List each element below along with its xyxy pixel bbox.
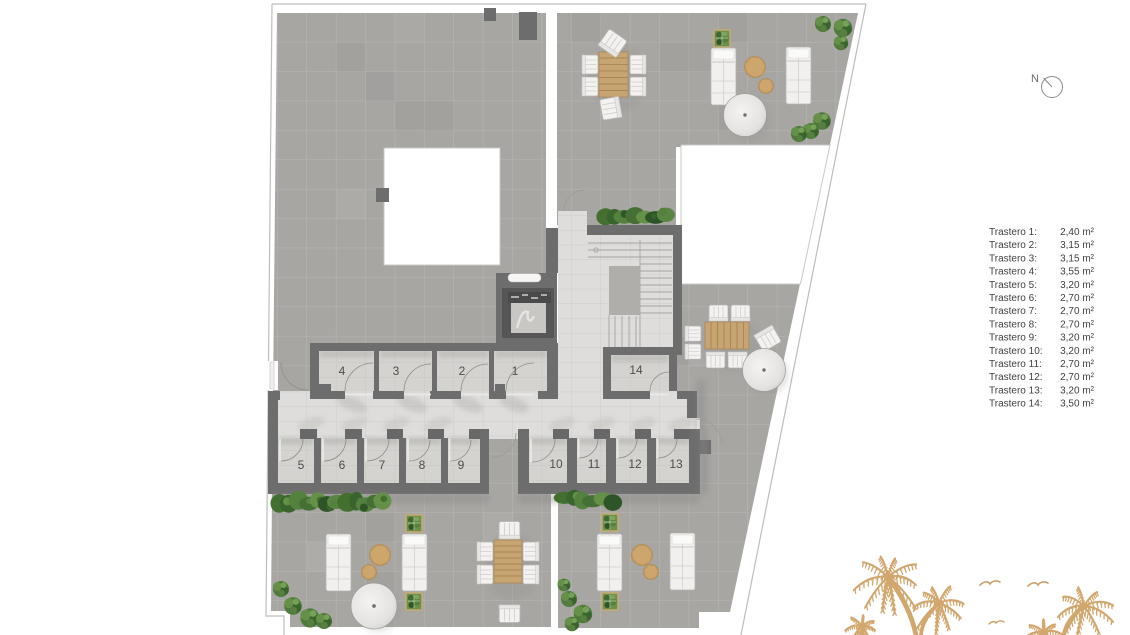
svg-text:14: 14 xyxy=(629,363,643,377)
svg-text:Trastero 6:: Trastero 6: xyxy=(989,293,1037,304)
svg-text:9: 9 xyxy=(458,458,465,472)
svg-text:2: 2 xyxy=(459,364,466,378)
svg-text:5: 5 xyxy=(298,458,305,472)
svg-text:Trastero 10:: Trastero 10: xyxy=(989,346,1043,357)
svg-text:11: 11 xyxy=(588,457,601,471)
svg-text:2,70 m²: 2,70 m² xyxy=(1060,359,1095,370)
svg-text:Trastero 1:: Trastero 1: xyxy=(989,227,1037,238)
svg-text:Trastero 5:: Trastero 5: xyxy=(989,280,1037,291)
svg-text:8: 8 xyxy=(419,458,426,472)
svg-text:Trastero 3:: Trastero 3: xyxy=(989,253,1037,264)
svg-text:3,20 m²: 3,20 m² xyxy=(1060,385,1095,396)
svg-text:N: N xyxy=(1031,73,1039,85)
svg-text:Trastero 12:: Trastero 12: xyxy=(989,372,1043,383)
svg-text:2,40 m²: 2,40 m² xyxy=(1060,227,1095,238)
svg-text:Trastero 2:: Trastero 2: xyxy=(989,240,1037,251)
svg-text:4: 4 xyxy=(339,364,346,378)
svg-text:3,20 m²: 3,20 m² xyxy=(1060,333,1095,344)
svg-text:Trastero 9:: Trastero 9: xyxy=(989,333,1037,344)
svg-text:3,55 m²: 3,55 m² xyxy=(1060,267,1095,278)
svg-text:Trastero 13:: Trastero 13: xyxy=(989,385,1043,396)
svg-text:3,20 m²: 3,20 m² xyxy=(1060,280,1095,291)
svg-text:Trastero 7:: Trastero 7: xyxy=(989,306,1037,317)
svg-text:2,70 m²: 2,70 m² xyxy=(1060,306,1095,317)
svg-text:3: 3 xyxy=(393,364,400,378)
svg-text:3,15 m²: 3,15 m² xyxy=(1060,240,1095,251)
svg-text:13: 13 xyxy=(669,457,683,471)
svg-text:3,20 m²: 3,20 m² xyxy=(1060,346,1095,357)
svg-text:Trastero 14:: Trastero 14: xyxy=(989,399,1043,410)
svg-text:2,70 m²: 2,70 m² xyxy=(1060,319,1095,330)
svg-text:2,70 m²: 2,70 m² xyxy=(1060,372,1095,383)
svg-text:2,70 m²: 2,70 m² xyxy=(1060,293,1095,304)
svg-text:1: 1 xyxy=(512,364,519,378)
svg-text:3,50 m²: 3,50 m² xyxy=(1060,399,1095,410)
svg-text:Trastero 4:: Trastero 4: xyxy=(989,267,1037,278)
svg-text:Trastero 8:: Trastero 8: xyxy=(989,319,1037,330)
svg-text:3,15 m²: 3,15 m² xyxy=(1060,253,1095,264)
svg-text:Trastero 11:: Trastero 11: xyxy=(989,359,1042,370)
svg-text:12: 12 xyxy=(628,457,642,471)
svg-text:10: 10 xyxy=(549,457,563,471)
svg-text:7: 7 xyxy=(379,458,386,472)
svg-text:6: 6 xyxy=(339,458,346,472)
